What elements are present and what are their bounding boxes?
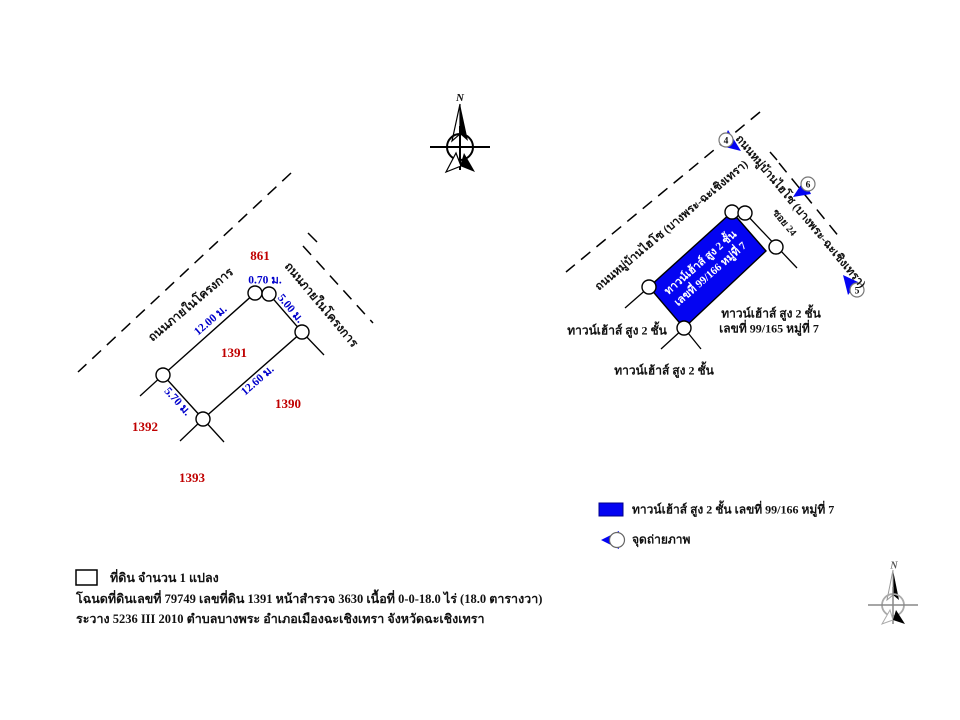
land-info-line3: ระวาง 5236 III 2010 ตำบลบางพระ อำเภอเมือ… [76,609,485,629]
land-survey-document-page: 4 6 5 [0,0,960,720]
survey-marker [738,206,752,220]
north-letter: N [456,92,464,104]
north-arrow-small-icon [868,570,918,624]
road-corner-stub [308,233,317,242]
survey-marker [725,205,739,219]
legend-parcel-label: ทาวน์เฮ้าส์ สูง 2 ชั้น เลขที่ 99/166 หมู… [632,501,834,520]
north-letter-small: N [890,561,897,572]
neighbor-townhouse-right-line1: ทาวน์เฮ้าส์ สูง 2 ชั้น [721,307,821,320]
survey-marker [769,240,783,254]
neighbor-parcel-1393: 1393 [179,471,205,485]
photo-point-marker-6: 6 [793,177,815,197]
land-plot-symbol-box [76,570,97,585]
land-info-line2: โฉนดที่ดินเลขที่ 79749 เลขที่ดิน 1391 หน… [76,589,542,609]
north-arrow-icon [430,104,490,172]
photo-point-circle [610,533,625,548]
legend-photo-label: จุดถ่ายภาพ [632,531,690,550]
survey-marker [295,325,309,339]
neighbor-parcel-1392: 1392 [132,420,158,434]
survey-marker [677,321,691,335]
road-corner-stub [770,152,777,160]
neighbor-townhouse-left: ทาวน์เฮ้าส์ สูง 2 ชั้น [567,324,667,337]
neighbor-townhouse-right-line2: เลขที่ 99/165 หมู่ที่ 7 [719,322,819,335]
legend-parcel-swatch [599,503,623,516]
survey-marker [156,368,170,382]
land-info-line1: ที่ดิน จำนวน 1 แปลง [110,568,219,588]
dimension-top: 0.70 ม. [248,275,281,288]
photo-point-number: 6 [806,181,811,191]
survey-marker [248,286,262,300]
survey-marker [196,412,210,426]
neighbor-townhouse-bottom: ทาวน์เฮ้าส์ สูง 2 ชั้น [614,364,714,377]
neighbor-parcel-1390: 1390 [275,397,301,411]
subject-parcel-1391: 1391 [221,346,247,360]
survey-marker [642,280,656,294]
road-dashed-line-left [78,173,291,372]
legend-icons [599,503,625,549]
neighbor-parcel-861: 861 [250,249,270,263]
photo-point-number: 4 [724,137,729,147]
